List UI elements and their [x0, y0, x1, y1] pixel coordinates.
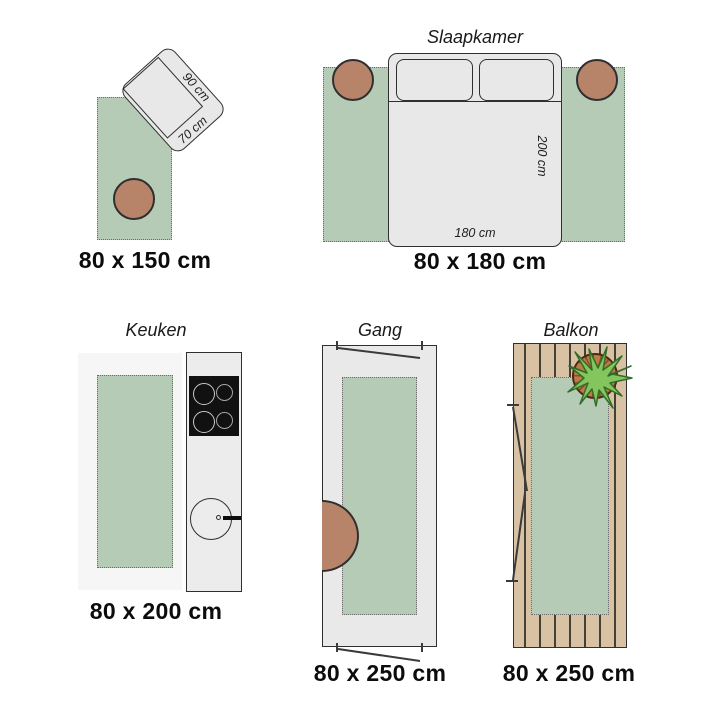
- plant-stool: [113, 178, 155, 220]
- pillow-left: [396, 59, 473, 101]
- gang-title: Gang: [300, 320, 460, 341]
- caption-80x180: 80 x 180 cm: [380, 248, 580, 275]
- burner-icon: [193, 383, 215, 405]
- faucet-icon: [223, 516, 241, 520]
- caption-80x200: 80 x 200 cm: [66, 598, 246, 625]
- rug-size-guide: 90 cm 70 cm 80 x 150 cm Slaapkamer 200 c…: [0, 0, 720, 720]
- pillow-right: [479, 59, 554, 101]
- keuken-title: Keuken: [76, 320, 236, 341]
- caption-80x250-balkon: 80 x 250 cm: [479, 660, 659, 687]
- kitchen-counter: [186, 352, 242, 592]
- plant-pot: [572, 353, 618, 399]
- burner-icon: [216, 384, 233, 401]
- bedside-stool-left: [332, 59, 374, 101]
- burner-icon: [216, 412, 233, 429]
- bedside-stool-right: [576, 59, 618, 101]
- deck-plank-line: [524, 344, 526, 647]
- bed: 200 cm 180 cm: [388, 53, 562, 247]
- caption-80x250-gang: 80 x 250 cm: [290, 660, 470, 687]
- deck-plank-line: [614, 344, 616, 647]
- bed-mattress-divider: [389, 101, 561, 102]
- balkon-title: Balkon: [491, 320, 651, 341]
- rug-80x200: [97, 375, 173, 568]
- bed-length-label: 200 cm: [535, 124, 549, 188]
- cooktop: [189, 376, 239, 436]
- sink-drain-icon: [216, 515, 221, 520]
- rug-80x250-gang: [342, 377, 417, 615]
- bed-width-label: 180 cm: [389, 226, 561, 240]
- burner-icon: [193, 411, 215, 433]
- caption-80x150: 80 x 150 cm: [45, 247, 245, 274]
- slaapkamer-title: Slaapkamer: [355, 27, 595, 48]
- rug-80x250-balkon: [531, 377, 609, 615]
